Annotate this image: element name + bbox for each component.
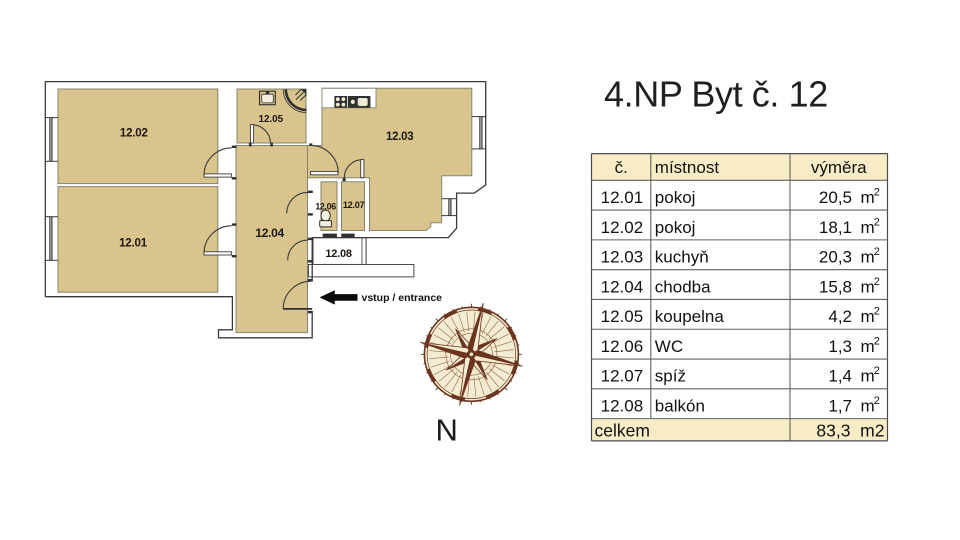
svg-text:12.03: 12.03 [601,248,644,267]
svg-text:12.01: 12.01 [601,188,644,207]
svg-text:N: N [436,412,458,447]
svg-text:2: 2 [874,276,880,288]
svg-text:4,2: 4,2 [828,307,852,326]
svg-text:12.06: 12.06 [601,337,644,356]
svg-text:83,3 m2: 83,3 m2 [816,421,884,441]
svg-text:1,3: 1,3 [828,337,852,356]
svg-text:m: m [861,218,875,237]
svg-text:2: 2 [874,246,880,258]
svg-text:12.08: 12.08 [325,248,352,260]
svg-text:12.07: 12.07 [343,200,365,210]
svg-text:2: 2 [874,306,880,318]
svg-text:12.02: 12.02 [601,218,644,237]
svg-text:pokoj: pokoj [655,188,696,207]
svg-text:12.05: 12.05 [601,307,644,326]
svg-text:20,3: 20,3 [819,248,852,267]
svg-text:12.05: 12.05 [259,114,284,125]
svg-text:balkón: balkón [655,397,705,416]
svg-text:12.04: 12.04 [255,226,284,240]
svg-text:12.01: 12.01 [119,238,148,250]
svg-text:č.: č. [615,158,628,177]
svg-text:pokoj: pokoj [655,218,696,237]
svg-text:kuchyň: kuchyň [655,248,709,267]
svg-text:m: m [861,367,875,386]
svg-text:spíž: spíž [655,367,686,386]
svg-text:vstup / entrance: vstup / entrance [362,292,443,304]
svg-text:WC: WC [655,337,683,356]
svg-text:2: 2 [874,187,880,199]
svg-text:4.NP Byt č. 12: 4.NP Byt č. 12 [604,74,828,115]
svg-text:výměra: výměra [811,158,867,177]
svg-text:20,5: 20,5 [819,188,852,207]
svg-text:místnost: místnost [655,158,720,177]
svg-text:m: m [861,307,875,326]
svg-text:12.08: 12.08 [601,397,644,416]
svg-text:12.04: 12.04 [601,277,644,296]
svg-text:18,1: 18,1 [819,218,852,237]
svg-text:12.03: 12.03 [386,131,413,143]
svg-text:chodba: chodba [655,277,711,296]
svg-text:2: 2 [874,216,880,228]
svg-text:celkem: celkem [595,421,650,441]
svg-text:m: m [861,277,875,296]
svg-text:1,4: 1,4 [828,367,852,386]
svg-text:2: 2 [874,365,880,377]
svg-text:m: m [861,248,875,267]
svg-text:15,8: 15,8 [819,277,852,296]
svg-text:koupelna: koupelna [655,307,725,326]
svg-text:2: 2 [874,395,880,407]
svg-text:m: m [861,397,875,416]
svg-text:12.02: 12.02 [120,128,148,140]
svg-text:1,7: 1,7 [828,397,852,416]
svg-text:2: 2 [874,335,880,347]
svg-text:12.06: 12.06 [315,201,336,211]
svg-text:m: m [861,337,875,356]
svg-text:m: m [861,188,875,207]
svg-text:12.07: 12.07 [601,367,644,386]
